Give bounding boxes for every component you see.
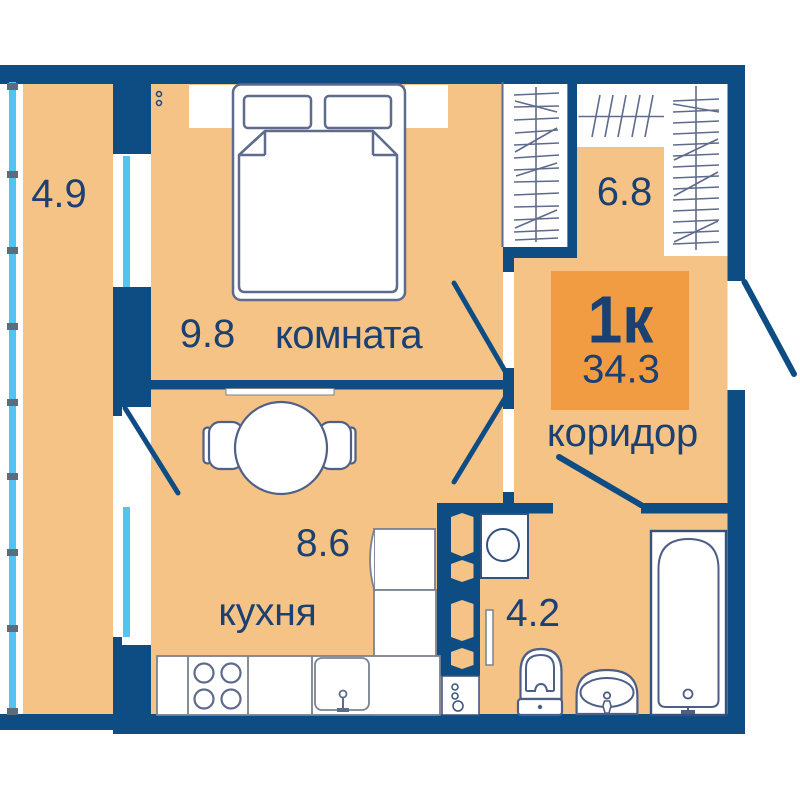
svg-text:4.9: 4.9 bbox=[31, 172, 87, 216]
svg-text:кухня: кухня bbox=[218, 591, 316, 634]
svg-text:4.2: 4.2 bbox=[506, 592, 560, 635]
svg-text:1к: 1к bbox=[588, 281, 654, 357]
svg-text:9.8: 9.8 bbox=[180, 312, 236, 356]
svg-text:коридор: коридор bbox=[547, 411, 698, 455]
svg-text:8.6: 8.6 bbox=[296, 522, 350, 565]
svg-text:34.3: 34.3 bbox=[582, 348, 660, 392]
svg-text:6.8: 6.8 bbox=[597, 170, 653, 214]
svg-text:комната: комната bbox=[275, 313, 423, 357]
